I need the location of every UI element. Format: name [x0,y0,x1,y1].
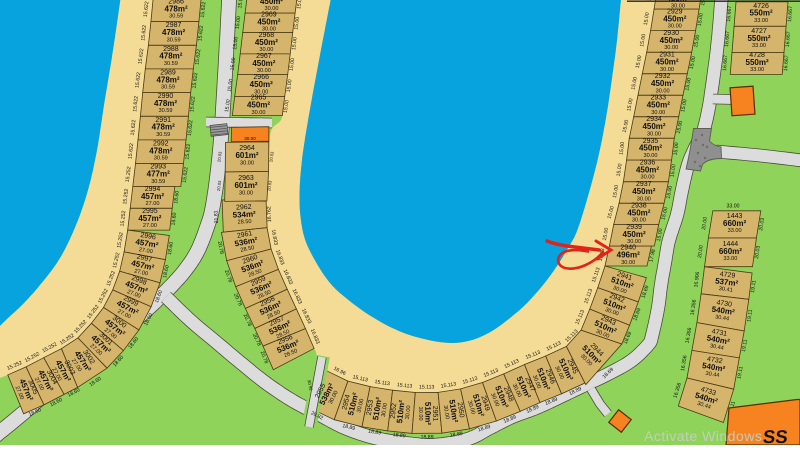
svg-text:30.00: 30.00 [627,239,641,245]
svg-text:33.00: 33.00 [752,43,766,49]
svg-text:Activate Windows: Activate Windows [644,429,762,445]
svg-text:30.00: 30.00 [660,67,674,73]
svg-text:450m²: 450m² [627,209,650,218]
svg-text:30.00: 30.00 [240,160,254,166]
svg-text:478m²: 478m² [162,28,185,37]
svg-text:33.00: 33.00 [750,67,764,73]
svg-text:16.667: 16.667 [724,31,731,47]
svg-text:16.762: 16.762 [266,206,273,222]
svg-text:550m²: 550m² [750,9,773,18]
svg-text:510m²: 510m² [423,402,432,426]
svg-text:450m²: 450m² [632,187,655,196]
svg-text:30.00: 30.00 [632,218,646,224]
svg-text:550m²: 550m² [746,58,769,67]
svg-text:16.667: 16.667 [726,5,733,21]
svg-text:478m²: 478m² [156,75,179,84]
svg-text:30.59: 30.59 [169,14,183,20]
svg-text:660m²: 660m² [723,219,746,228]
svg-text:30.00: 30.00 [417,407,423,421]
svg-text:21.81: 21.81 [213,210,220,223]
svg-text:27.00: 27.00 [143,223,157,229]
svg-text:478m²: 478m² [154,99,177,108]
svg-text:601m²: 601m² [234,181,257,190]
svg-text:16.667: 16.667 [785,31,792,47]
svg-text:30.00: 30.00 [656,88,670,94]
svg-text:450m²: 450m² [639,144,662,153]
svg-text:30.59: 30.59 [151,179,165,185]
svg-text:450m²: 450m² [647,101,670,110]
svg-text:601m²: 601m² [235,151,258,160]
svg-text:457m²: 457m² [141,192,164,201]
svg-text:457m²: 457m² [138,214,161,223]
svg-text:450m²: 450m² [651,79,674,88]
svg-text:30.00: 30.00 [647,131,661,137]
svg-text:33.00: 33.00 [723,256,737,262]
svg-text:450m²: 450m² [247,101,270,110]
svg-text:478m²: 478m² [159,52,182,61]
svg-text:15.113: 15.113 [419,384,435,390]
svg-text:450m²: 450m² [660,36,683,45]
svg-text:450m²: 450m² [642,122,665,131]
svg-text:30.59: 30.59 [164,61,178,67]
svg-text:30.00: 30.00 [257,68,271,74]
svg-text:478m²: 478m² [165,4,188,13]
svg-text:534m²: 534m² [232,210,256,220]
svg-text:30.00: 30.00 [244,136,256,141]
svg-text:18.89: 18.89 [421,434,434,440]
svg-text:450m²: 450m² [252,59,275,68]
svg-text:660m²: 660m² [719,247,742,256]
svg-text:30.00: 30.00 [252,110,266,116]
svg-text:30.59: 30.59 [167,37,181,43]
svg-text:450m²: 450m² [257,17,280,26]
svg-text:33.00: 33.00 [754,18,768,24]
svg-text:550m²: 550m² [747,34,770,43]
svg-text:30.00: 30.00 [637,196,651,202]
svg-text:30.00: 30.00 [641,175,655,181]
svg-text:30.00: 30.00 [644,153,658,159]
svg-text:30.59: 30.59 [156,132,170,138]
svg-text:28.50: 28.50 [237,219,251,226]
svg-text:450m²: 450m² [255,38,278,47]
svg-text:450m²: 450m² [260,0,283,6]
svg-text:496m²: 496m² [617,251,640,260]
svg-text:33.00: 33.00 [728,228,742,234]
svg-text:450m²: 450m² [636,166,659,175]
svg-text:450m²: 450m² [655,58,678,67]
svg-text:30.00: 30.00 [671,3,685,9]
svg-text:30.00: 30.00 [621,260,635,266]
svg-text:478m²: 478m² [149,146,172,155]
svg-text:SS: SS [762,426,789,445]
svg-text:30.00: 30.00 [668,24,682,30]
svg-text:30.59: 30.59 [161,85,175,91]
svg-text:478m²: 478m² [152,123,175,132]
svg-text:33.00: 33.00 [727,204,740,210]
svg-text:30.59: 30.59 [159,108,173,114]
svg-text:27.00: 27.00 [146,201,160,207]
svg-text:30.00: 30.00 [664,45,678,51]
svg-text:30.59: 30.59 [154,156,168,162]
svg-text:16.667: 16.667 [787,6,794,22]
svg-text:30.00: 30.00 [239,190,253,196]
svg-text:30.00: 30.00 [651,110,665,116]
svg-text:450m²: 450m² [663,14,686,23]
svg-text:477m²: 477m² [147,170,170,179]
svg-text:450m²: 450m² [623,230,646,239]
svg-text:450m²: 450m² [250,80,273,89]
